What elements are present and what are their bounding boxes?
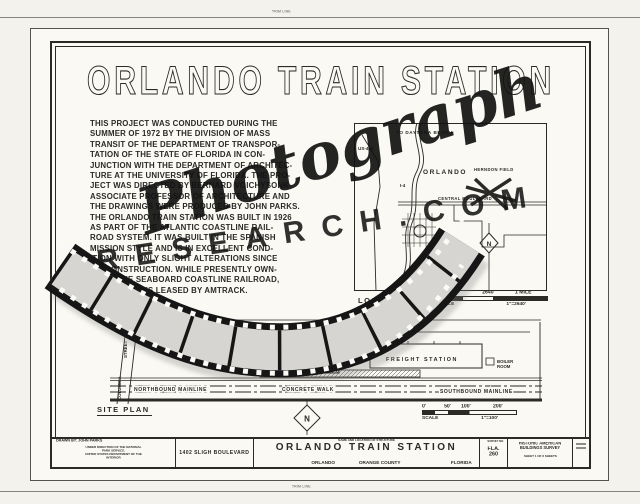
label-room: ROOM — [497, 364, 511, 369]
freight-station-building — [370, 341, 482, 368]
boiler-room-building — [486, 358, 494, 365]
label-sligh-blvd: SLIGH BOULEVARD — [260, 337, 322, 343]
tick: 1 MILE — [515, 290, 531, 295]
label-concrete-walk: CONCRETE WALK — [282, 387, 334, 393]
location-map-scale: 0' 2640' 1 MILE SCALE 1"=2640' — [438, 289, 548, 309]
trim-line-bottom-label: TRIM LINE — [292, 485, 311, 488]
label-southbound: SOUTHBOUND MAINLINE — [440, 389, 513, 395]
scale-word: SCALE — [438, 302, 454, 307]
platform-canopy-line — [165, 343, 370, 346]
scale-ratio: 1"=100' — [481, 416, 498, 421]
scale-names: SCALE 1"=2640' — [438, 301, 526, 307]
state-label: FLORIDA — [451, 461, 472, 466]
structure-name-label: ORLANDO TRAIN STATION — [254, 442, 479, 453]
trim-line-top — [0, 17, 640, 18]
tick: 200' — [493, 404, 503, 409]
site-plan-caption: SITE PLAN — [97, 405, 152, 416]
scale-ticks: 0' 50' 100' 200' — [422, 404, 503, 410]
site-plan-scale: 0' 50' 100' 200' SCALE 1"=100' — [422, 403, 517, 423]
direction-text: UNDER DIRECTION OF THE NATIONAL PARK SER… — [83, 446, 145, 460]
label-freight-station: FREIGHT STATION — [386, 357, 458, 363]
label-street: STREET — [123, 340, 128, 358]
scale-names: SCALE 1"=100' — [422, 415, 498, 421]
illegible-microtext — [576, 447, 586, 449]
address-box: 1402 SLIGH BOULEVARD — [176, 439, 254, 467]
address-label: 1402 SLIGH BOULEVARD — [179, 450, 249, 455]
county-label: ORANGE COUNTY — [359, 461, 401, 466]
north-arrow-icon: N — [480, 223, 498, 291]
survey-number-header: SURVEY NO. — [487, 440, 499, 443]
survey-number-value: FLA. 260 — [481, 447, 505, 458]
site-north-arrow-icon: N — [290, 401, 324, 435]
sheet-info-label: SHEET 1 OF 6 SHEETS — [524, 455, 556, 458]
direction-box: UNDER DIRECTION OF THE NATIONAL PARK SER… — [52, 439, 176, 467]
illegible-microtext — [576, 443, 586, 445]
scale-ticks: 0' 2640' 1 MILE — [438, 290, 532, 296]
habs-title: HISTORIC AMERICAN BUILDINGS SURVEY — [518, 442, 562, 450]
structure-box: NAME AND LOCATION OF STRUCTURE ORLANDO T… — [254, 439, 480, 467]
label-columbia: COLUMBIA — [117, 376, 122, 400]
scale-word: SCALE — [422, 416, 438, 421]
trim-line-top-label: TRIM LINE — [272, 10, 291, 13]
tick: 0' — [438, 290, 442, 295]
microtext-box — [573, 439, 589, 467]
location-map-caption: LOCATION MAP — [358, 296, 435, 307]
tick: 0' — [422, 404, 426, 409]
trim-line-bottom — [0, 491, 640, 492]
label-i4: I-4 — [400, 183, 406, 188]
structure-location-row: ORLANDO ORANGE COUNTY FLORIDA — [254, 460, 479, 467]
title-block: DRAWN BY: JOHN PARKS UNDER DIRECTION OF … — [52, 437, 589, 467]
north-letter: N — [487, 241, 492, 248]
tick: 100' — [461, 404, 471, 409]
survey-number-box: SURVEY NO. FLA. 260 — [480, 439, 508, 467]
scale-ratio: 1"=2640' — [506, 302, 526, 307]
label-northbound: NORTHBOUND MAINLINE — [134, 387, 207, 393]
tick: 2640' — [482, 290, 495, 295]
label-herndon-field: HERNDON FIELD — [474, 167, 514, 172]
habs-box: HISTORIC AMERICAN BUILDINGS SURVEY SHEET… — [508, 439, 573, 467]
north-letter: N — [304, 415, 310, 424]
sligh-boulevard-road — [140, 320, 541, 332]
label-orlando: ORLANDO — [423, 169, 467, 176]
platform-strip — [260, 370, 420, 377]
city-label: ORLANDO — [311, 461, 335, 466]
site-plan: STREET COLUMBIA SLIGH BOULEVARD — [110, 310, 542, 404]
title-block-boxes: UNDER DIRECTION OF THE NATIONAL PARK SER… — [52, 439, 589, 467]
tick: 50' — [444, 404, 451, 409]
